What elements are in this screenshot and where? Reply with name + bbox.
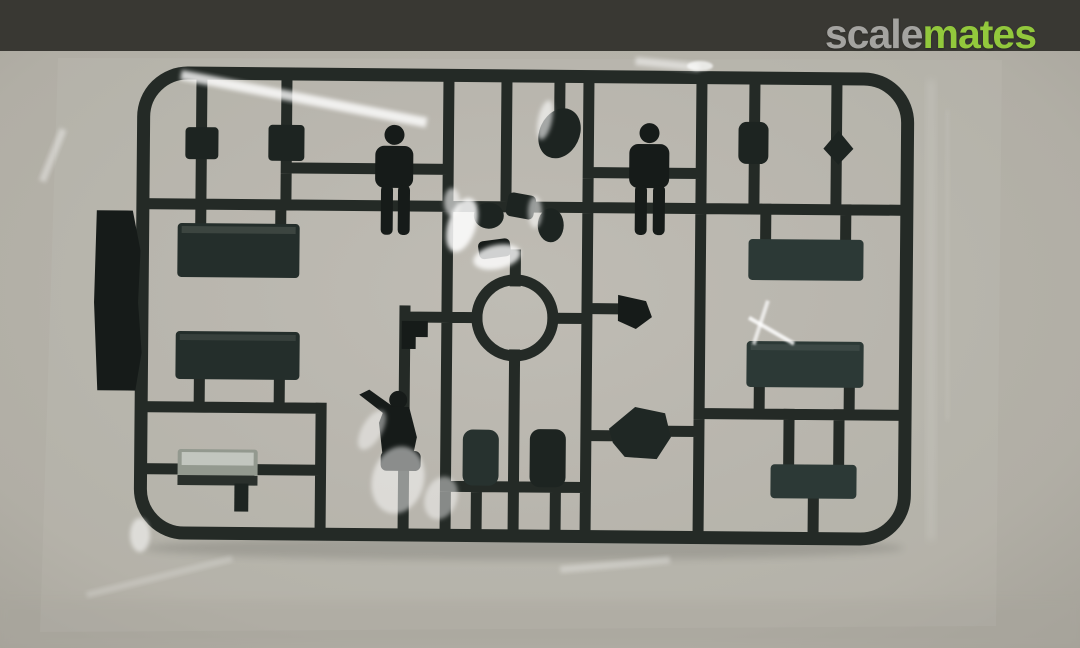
part-small-block-3 [738, 122, 768, 164]
part-left-edge-blob [93, 210, 143, 390]
part-bar-mid-right [746, 341, 863, 388]
sprue-photo [0, 0, 1080, 648]
part-cylinder-2 [529, 429, 566, 487]
bag-fold-right-2 [946, 110, 949, 420]
part-small-block-1 [185, 127, 218, 159]
watermark-prefix: scale [825, 11, 923, 57]
part-bar-upper-right [748, 239, 863, 281]
reflection-spot-bottom-left [130, 518, 150, 552]
part-hull-lower-left [175, 331, 299, 380]
part-cylinder-1 [462, 429, 498, 485]
bag-fold-right [928, 80, 934, 540]
part-hull-upper-left [177, 223, 299, 278]
part-bar-lower-right [770, 464, 856, 499]
reflection-spot-top [687, 61, 713, 71]
part-small-block-2 [268, 125, 304, 161]
watermark-logo: scalemates [825, 14, 1036, 55]
watermark-suffix: mates [922, 11, 1036, 57]
screenshot-stage: scalemates [0, 0, 1080, 648]
